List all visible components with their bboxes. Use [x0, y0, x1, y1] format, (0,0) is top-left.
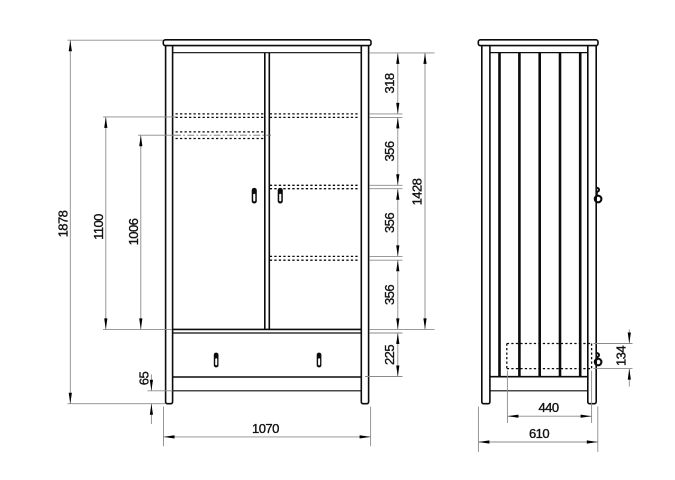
svg-text:1070: 1070 — [252, 421, 279, 436]
svg-text:1878: 1878 — [55, 210, 70, 237]
svg-text:356: 356 — [382, 213, 397, 233]
svg-text:1006: 1006 — [126, 218, 141, 245]
svg-text:1100: 1100 — [91, 214, 106, 240]
svg-text:610: 610 — [529, 426, 549, 441]
svg-text:356: 356 — [382, 141, 397, 161]
svg-text:356: 356 — [382, 285, 397, 305]
svg-text:1428: 1428 — [409, 178, 424, 205]
svg-text:318: 318 — [382, 73, 397, 93]
svg-text:225: 225 — [382, 345, 397, 365]
svg-text:65: 65 — [137, 372, 152, 386]
svg-text:440: 440 — [538, 400, 558, 415]
svg-text:134: 134 — [614, 346, 629, 366]
